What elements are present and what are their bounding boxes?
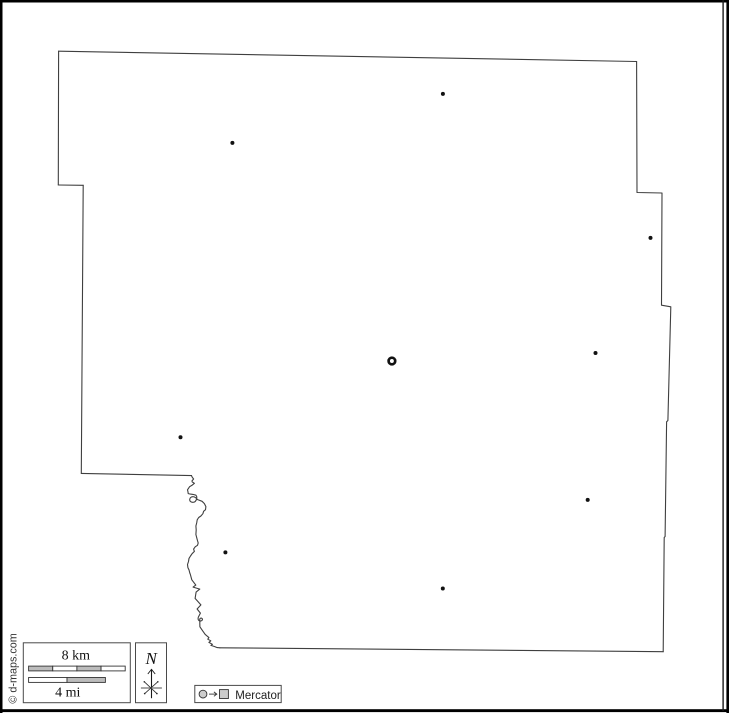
svg-text:Mercator: Mercator [235, 690, 281, 702]
svg-text:4 mi: 4 mi [55, 686, 80, 701]
svg-text:8 km: 8 km [62, 649, 91, 664]
svg-text:© d-maps.com: © d-maps.com [7, 633, 19, 703]
svg-text:N: N [145, 649, 159, 668]
